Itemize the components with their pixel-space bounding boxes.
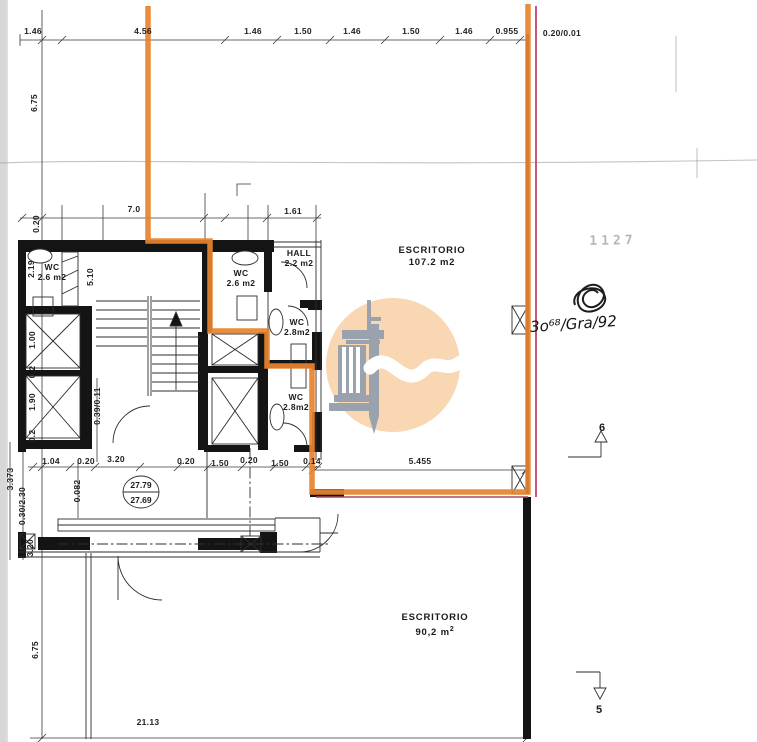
dimension-label: 6.75 bbox=[30, 641, 40, 659]
room-name: WC bbox=[38, 262, 67, 272]
room-area: 107.2 m2 bbox=[399, 257, 466, 269]
room-area: 2.6 m2 bbox=[38, 272, 67, 282]
room-area-value: 90,2 m bbox=[415, 627, 449, 638]
dimension-label: 0.2 bbox=[27, 430, 37, 443]
room-name: HALL bbox=[285, 248, 314, 258]
dimension-label: 0.39/0.11 bbox=[92, 387, 102, 425]
plan-drawing bbox=[0, 0, 757, 742]
dimension-label: 5.10 bbox=[85, 268, 95, 286]
room-area: 2.8m2 bbox=[283, 402, 309, 412]
dimension-label: 0.14 bbox=[303, 456, 321, 466]
dimension-label: 1.46 bbox=[24, 26, 42, 36]
dimension-label: 1.50 bbox=[211, 458, 229, 468]
room-label-wc-upper-right: WC 2.8m2 bbox=[284, 317, 310, 337]
room-area: 90,2 m2 bbox=[402, 624, 469, 639]
dimension-label: 1.50 bbox=[271, 458, 289, 468]
facade-band bbox=[18, 448, 338, 739]
dimension-label: 1.00 bbox=[27, 331, 37, 349]
room-name: WC bbox=[284, 317, 310, 327]
dimension-label: 0.082 bbox=[72, 480, 82, 503]
dimension-label: 1.46 bbox=[455, 26, 473, 36]
dimension-label: 1.04 bbox=[42, 456, 60, 466]
dimension-label: 5.455 bbox=[409, 456, 432, 466]
room-area: 2.6 m2 bbox=[227, 278, 256, 288]
dimension-label: 1.46 bbox=[343, 26, 361, 36]
room-area-exponent: 2 bbox=[450, 626, 455, 633]
stairwell bbox=[96, 296, 200, 396]
dimension-label: 0.2 bbox=[27, 366, 37, 379]
dimension-label: 4.56 bbox=[134, 26, 152, 36]
dimension-label: 0.20 bbox=[31, 215, 41, 233]
faded-stamp-number: 1127 bbox=[589, 233, 637, 249]
dimension-label: 3.20 bbox=[107, 454, 125, 464]
floor-plan-sheet: 1.464.561.461.501.461.501.460.9550.20/0.… bbox=[0, 0, 757, 742]
room-label-wc-mid: WC 2.6 m2 bbox=[227, 268, 256, 288]
dimension-label: 7.0 bbox=[128, 204, 141, 214]
room-name: ESCRITORIO bbox=[399, 245, 466, 257]
dimension-label: 1.61 bbox=[284, 206, 302, 216]
room-name: WC bbox=[227, 268, 256, 278]
section-marker-6: 6 bbox=[599, 422, 605, 434]
section-marker-lines bbox=[568, 431, 607, 699]
dimension-label: 0.20/0.01 bbox=[543, 28, 581, 38]
room-area: 2.8m2 bbox=[284, 327, 310, 337]
room-label-office-lower: ESCRITORIO 90,2 m2 bbox=[402, 612, 469, 639]
watermark-logo bbox=[326, 298, 460, 434]
room-label-office-upper: ESCRITORIO 107.2 m2 bbox=[399, 245, 466, 269]
dimension-label: 0.20 bbox=[240, 455, 258, 465]
dimension-label: 0.955 bbox=[496, 26, 519, 36]
room-label-hall: HALL 2.2 m2 bbox=[285, 248, 314, 268]
dimension-label: 2.19 bbox=[26, 260, 36, 278]
room-area: 2.2 m2 bbox=[285, 258, 314, 268]
handwritten-scribble bbox=[574, 285, 605, 312]
dimension-label: 6.75 bbox=[29, 94, 39, 112]
section-marker-5: 5 bbox=[596, 704, 602, 716]
dimension-label: 3.373 bbox=[5, 468, 15, 491]
dimension-label: 21.13 bbox=[137, 717, 160, 727]
level-value-upper: 27.79 bbox=[130, 480, 151, 490]
dimension-label: 0.30/2.30 bbox=[17, 487, 27, 525]
room-label-wc-left: WC 2.6 m2 bbox=[38, 262, 67, 282]
room-name: ESCRITORIO bbox=[402, 612, 469, 624]
dimension-label: 0.20 bbox=[77, 456, 95, 466]
room-name: WC bbox=[283, 392, 309, 402]
dimension-label: 3.20 bbox=[25, 539, 35, 557]
dimension-label: 1.46 bbox=[244, 26, 262, 36]
dimension-label: 1.90 bbox=[27, 393, 37, 411]
room-label-wc-lower-right: WC 2.8m2 bbox=[283, 392, 309, 412]
level-value-lower: 27.69 bbox=[130, 495, 151, 505]
dimension-label: 1.50 bbox=[294, 26, 312, 36]
dimension-label: 0.20 bbox=[177, 456, 195, 466]
watermark-stripes bbox=[342, 347, 360, 393]
dimension-label: 1.50 bbox=[402, 26, 420, 36]
